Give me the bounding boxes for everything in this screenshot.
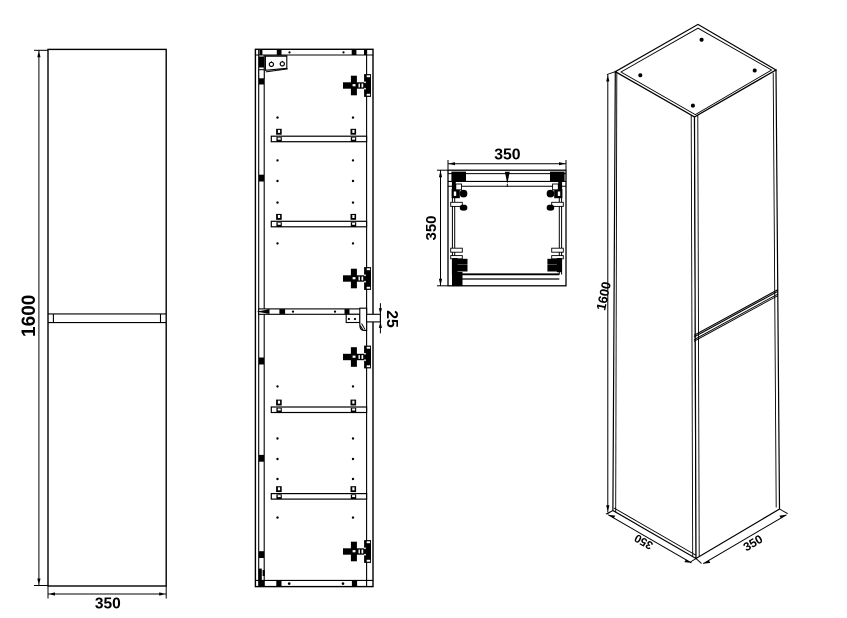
svg-text:350: 350 <box>95 596 121 613</box>
svg-text:1600: 1600 <box>19 295 40 337</box>
svg-text:350: 350 <box>423 215 440 240</box>
svg-text:25: 25 <box>383 310 400 328</box>
svg-text:350: 350 <box>494 147 521 164</box>
